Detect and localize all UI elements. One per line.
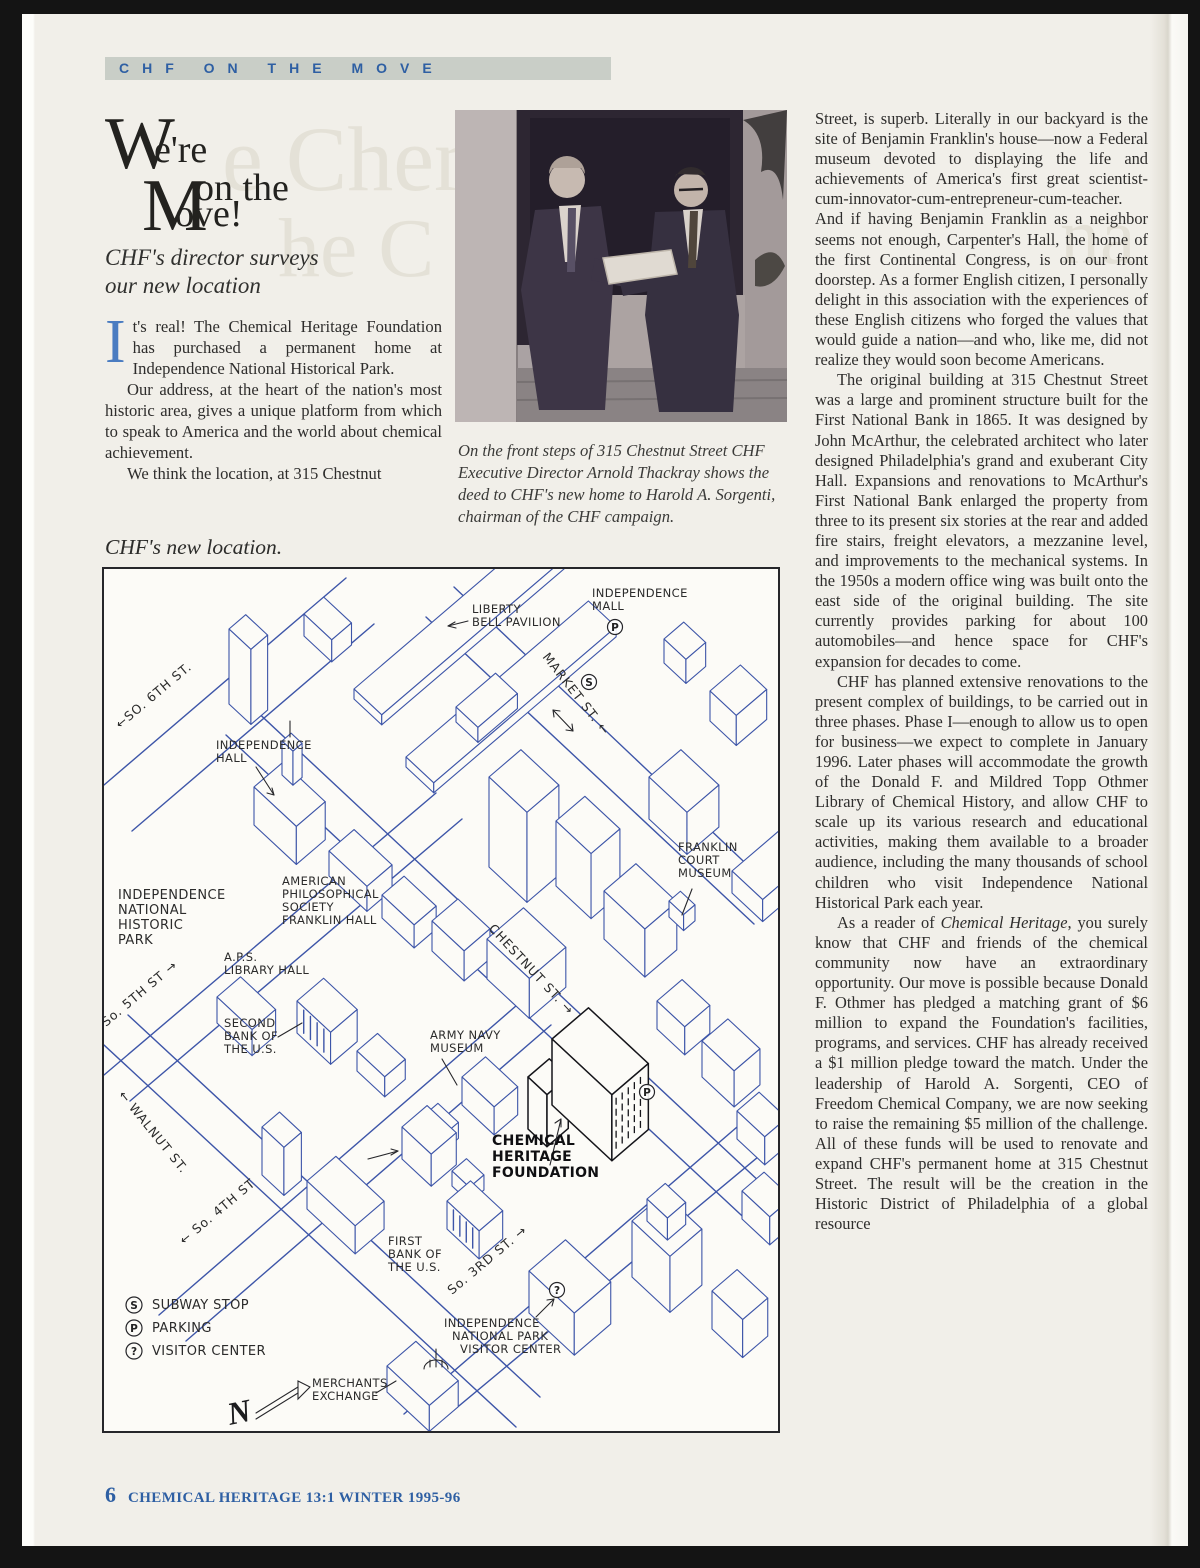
paragraph: Our address, at the heart of the nation'…: [105, 379, 442, 463]
magazine-page: e Chem he C na CHF ON THE MOVE W e're M …: [22, 14, 1188, 1546]
svg-text:P: P: [611, 622, 619, 634]
map-label-merchants-exchange: MERCHANTSEXCHANGE: [312, 1376, 388, 1403]
svg-text:P: P: [643, 1087, 651, 1099]
paragraph: As a reader of Chemical Heritage, you su…: [815, 913, 1148, 1235]
paragraph: The original building at 315 Chestnut St…: [815, 370, 1148, 671]
legend-label: SUBWAY STOP: [152, 1298, 249, 1313]
map-street-so-5th-st: So. 5TH ST →: [104, 957, 180, 1029]
footer-text: CHEMICAL HERITAGE 13:1 WINTER 1995-96: [128, 1490, 461, 1506]
subtitle-line: our new location: [105, 272, 319, 300]
map-label-independence-mall: INDEPENDENCEMALL: [592, 586, 688, 613]
map-street-walnut-st: ← WALNUT ST.: [116, 1087, 192, 1176]
svg-text:P: P: [130, 1323, 138, 1335]
map-label-first-bank: FIRSTBANK OFTHE U.S.: [387, 1234, 442, 1274]
paragraph: CHF has planned extensive renovations to…: [815, 672, 1148, 913]
legend-label: VISITOR CENTER: [152, 1344, 266, 1359]
paragraph: Street, is superb. Literally in our back…: [815, 109, 1148, 370]
location-map: INDEPENDENCEMALLLIBERTYBELL PAVILIONINDE…: [102, 567, 780, 1433]
svg-text:S: S: [585, 677, 593, 689]
svg-text:?: ?: [131, 1346, 137, 1358]
map-label-independence-national-historic-park: INDEPENDENCENATIONALHISTORICPARK: [118, 888, 226, 948]
svg-text:?: ?: [554, 1285, 560, 1297]
paragraph: It's real! The Chemical Heritage Foundat…: [105, 316, 442, 379]
title-word-move: ove!: [175, 192, 243, 236]
map-label-franklin-court-museum: FRANKLINCOURTMUSEUM: [678, 840, 738, 880]
photo-illustration: [455, 110, 787, 422]
map-label-chemical-heritage-foundation: CHEMICALHERITAGEFOUNDATION: [492, 1133, 599, 1181]
map-street-so-6th-st: ←SO. 6TH ST.: [112, 659, 194, 731]
right-text-column: Street, is superb. Literally in our back…: [815, 109, 1148, 1234]
subtitle-line: CHF's director surveys: [105, 244, 319, 272]
page-footer: 6CHEMICAL HERITAGE 13:1 WINTER 1995-96: [105, 1482, 461, 1508]
left-text-column: It's real! The Chemical Heritage Foundat…: [105, 316, 442, 484]
photo-caption: On the front steps of 315 Chestnut Stree…: [458, 440, 792, 528]
drop-cap: I: [105, 316, 133, 366]
section-banner: CHF ON THE MOVE: [105, 57, 611, 80]
map-label-army-navy-museum: ARMY NAVYMUSEUM: [430, 1028, 501, 1055]
map-label-aps-library-hall: A.P.S.LIBRARY HALL: [224, 950, 309, 977]
photo-two-men-handshake: [455, 110, 787, 422]
article-subtitle: CHF's director surveys our new location: [105, 244, 319, 300]
paragraph-text: t's real! The Chemical Heritage Foundati…: [133, 317, 442, 378]
map-label-liberty-bell-pavilion: LIBERTYBELL PAVILION: [472, 602, 561, 629]
journal-title-italic: Chemical Heritage: [941, 913, 1068, 932]
map-caption: CHF's new location.: [105, 535, 282, 560]
paragraph-text: , you surely know that CHF and friends o…: [815, 913, 1148, 1233]
paragraph: We think the location, at 315 Chestnut: [105, 463, 442, 484]
location-map-drawing: INDEPENDENCEMALLLIBERTYBELL PAVILIONINDE…: [104, 569, 778, 1431]
paragraph-text: As a reader of: [837, 913, 941, 932]
svg-text:S: S: [130, 1300, 138, 1312]
map-label-second-bank: SECONDBANK OFTHE U.S.: [223, 1016, 278, 1056]
compass-north: N: [223, 1391, 256, 1431]
legend-label: PARKING: [152, 1321, 212, 1336]
map-street-so-4th-st: ← So. 4TH ST: [176, 1175, 258, 1247]
page-number: 6: [105, 1482, 116, 1507]
section-banner-title: CHF ON THE MOVE: [119, 60, 445, 76]
